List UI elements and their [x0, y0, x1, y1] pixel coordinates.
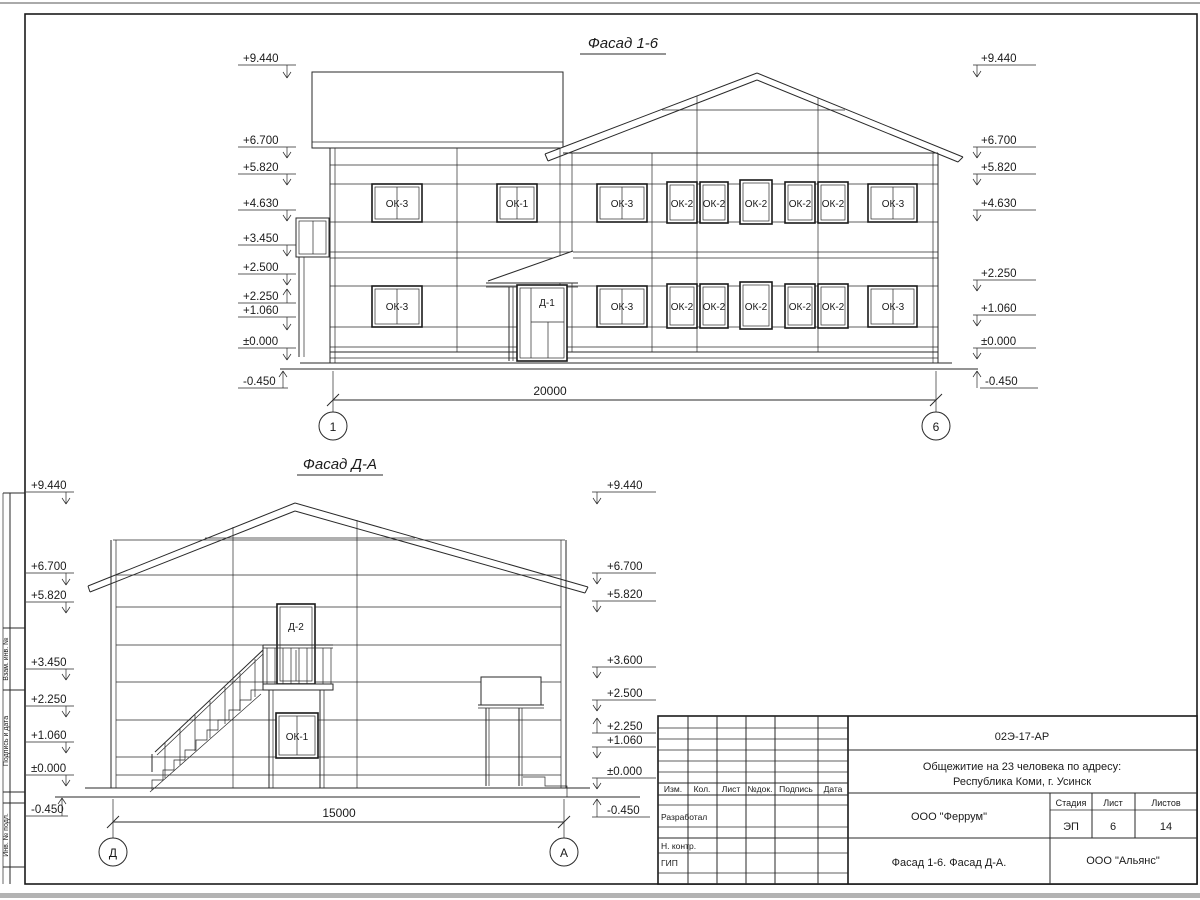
title-block: Изм. Кол. Лист №док. Подпись Дата Разраб… [658, 716, 1197, 884]
facade-1-6-ground [280, 363, 978, 369]
window-tag: ОК-1 [506, 199, 529, 210]
elevation-value: +5.820 [243, 162, 279, 174]
side-steps [523, 777, 567, 797]
elevation-value: +1.060 [31, 730, 67, 742]
side-stamp-label-3: Инв. № подл. [3, 813, 10, 857]
elevation-mark: ±0.000 [592, 766, 656, 789]
facade-1-6-roof-left [312, 72, 563, 148]
project-name-line2: Республика Коми, г. Усинск [953, 776, 1091, 788]
elevation-mark: +5.820 [973, 162, 1036, 185]
elevation-value: -0.450 [31, 804, 64, 816]
elevation-value: +6.700 [981, 135, 1017, 147]
drawing-canvas: Взам. инв. № Подпись и дата Инв. № подл.… [0, 0, 1200, 900]
elevation-value: +9.440 [31, 480, 67, 492]
window-tag: ОК-3 [386, 199, 409, 210]
row-nkontr: Н. контр. [661, 841, 696, 851]
elevation-mark: +3.600 [592, 655, 656, 678]
elevation-mark: +1.060 [973, 303, 1036, 326]
window: ОК-2 [667, 284, 697, 328]
elevation-value: +6.700 [243, 135, 279, 147]
facade-1-6-dimension: 20000 1 6 [319, 371, 950, 440]
elevation-mark: ±0.000 [26, 763, 74, 786]
facade-d-a-wall [111, 520, 566, 788]
elevation-value: +3.600 [607, 655, 643, 667]
landing [263, 684, 333, 690]
window: ОК-3 [372, 286, 422, 327]
facade-d-a-stair-entrance: Д-2 [150, 604, 333, 792]
dimension-value: 20000 [533, 384, 567, 398]
elevation-mark: +5.820 [26, 590, 74, 613]
window-tag: ОК-3 [611, 302, 634, 313]
col-podpis: Подпись [779, 784, 813, 794]
elevation-mark: -0.450 [26, 798, 68, 816]
sheets-header: Листов [1151, 798, 1180, 808]
org2-name: ООО "Альянс" [1086, 855, 1160, 867]
row-razrabotal: Разработал [661, 812, 707, 822]
elevation-mark: +9.440 [238, 53, 296, 78]
elevation-mark: +4.630 [973, 198, 1036, 221]
window-tag: ОК-3 [882, 302, 905, 313]
elevation-value: +4.630 [243, 198, 279, 210]
facade-1-6-windows-top: ОК-3 ОК-1 ОК-3 ОК-2 ОК-2 ОК-2 ОК-2 ОК-2 … [372, 180, 917, 224]
elevation-mark: -0.450 [973, 371, 1038, 388]
dimension-value: 15000 [322, 806, 356, 820]
elevation-mark: +9.440 [592, 480, 656, 504]
axis-label: Д [109, 846, 117, 860]
facade-d-a-window: ОК-1 [276, 713, 318, 758]
elevation-value: +5.820 [31, 590, 67, 602]
elevation-mark: -0.450 [592, 799, 650, 817]
window: ОК-2 [667, 182, 697, 223]
elevation-mark: +1.060 [592, 735, 656, 758]
window-tag: ОК-2 [789, 199, 812, 210]
elevation-mark: +6.700 [592, 561, 656, 584]
col-ndok: №док. [748, 784, 773, 794]
facade-1-6-wall [330, 148, 938, 363]
window: ОК-2 [740, 180, 772, 224]
elevation-mark: +2.250 [26, 694, 74, 717]
facade-d-a-title: Фасад Д-А [303, 456, 377, 473]
elevation-value: -0.450 [607, 805, 640, 817]
col-data: Дата [824, 784, 843, 794]
elevation-value: -0.450 [243, 376, 276, 388]
window: ОК-1 [497, 184, 537, 222]
window: ОК-2 [818, 284, 848, 328]
window-tag: ОК-3 [611, 199, 634, 210]
facade-1-6-side-porch [296, 218, 329, 357]
elevation-value: +3.450 [31, 657, 67, 669]
elevation-value: +4.630 [981, 198, 1017, 210]
elevation-mark: +6.700 [238, 135, 296, 158]
facade-1-6-entrance: Д-1 [486, 251, 578, 361]
window: ОК-2 [700, 182, 728, 223]
elevation-value: ±0.000 [981, 336, 1016, 348]
axis-label: А [560, 846, 568, 860]
paper-bottom-edge [0, 893, 1200, 898]
elevation-value: +9.440 [243, 53, 279, 65]
facade-1-6-marks-right: +9.440 +6.700 +5.820 +4.630 +2.250 +1.06… [973, 53, 1038, 388]
elevation-value: +6.700 [31, 561, 67, 573]
window: ОК-3 [868, 184, 917, 222]
org-name: ООО "Феррум" [911, 811, 987, 823]
elevation-mark: ±0.000 [238, 336, 296, 360]
elevation-mark: +6.700 [26, 561, 74, 585]
facade-d-a-dimension: 15000 Д А [99, 799, 578, 866]
window: ОК-2 [740, 282, 772, 329]
window-tag: ОК-2 [822, 199, 845, 210]
elevation-mark: +2.250 [973, 268, 1036, 291]
window-tag: ОК-2 [745, 302, 768, 313]
elevation-value: +6.700 [607, 561, 643, 573]
window-tag: ОК-3 [386, 302, 409, 313]
window-tag: ОК-2 [671, 302, 694, 313]
facade-1-6-title: Фасад 1-6 [588, 35, 659, 52]
elevation-value: +1.060 [243, 305, 279, 317]
window: ОК-2 [785, 284, 815, 328]
axis-label: 1 [330, 420, 337, 434]
window: ОК-3 [868, 286, 917, 327]
window: ОК-3 [597, 286, 647, 327]
elevation-value: ±0.000 [31, 763, 66, 775]
facade-d-a-roof [88, 503, 588, 593]
elevation-mark: -0.450 [238, 371, 288, 388]
elevation-mark: +4.630 [238, 198, 296, 221]
door-d1 [517, 285, 567, 361]
window-tag: ОК-2 [671, 199, 694, 210]
elevation-value: +5.820 [607, 589, 643, 601]
window: ОК-2 [785, 182, 815, 223]
elevation-mark: +2.500 [592, 688, 656, 711]
elevation-mark: +9.440 [26, 480, 74, 504]
facade-d-a-marks-left: +9.440 +6.700 +5.820 +3.450 +2.250 +1.06… [26, 480, 74, 816]
facade-1-6: Фасад 1-6 [238, 35, 1038, 440]
window-tag: ОК-2 [745, 199, 768, 210]
elevation-value: +2.250 [243, 291, 279, 303]
facade-d-a-side-canopy [478, 677, 567, 797]
elevation-mark: +2.500 [238, 262, 296, 285]
side-stamp-label-2: Подпись и дата [3, 716, 10, 766]
window: ОК-3 [597, 184, 647, 222]
elevation-value: +1.060 [981, 303, 1017, 315]
sheet-content: Фасад 1-6. Фасад Д-А. [892, 857, 1007, 869]
doc-code: 02Э-17-АР [995, 731, 1049, 743]
elevation-mark: +1.060 [238, 305, 296, 330]
sheet-value: 6 [1110, 821, 1116, 833]
elevation-value: +2.250 [31, 694, 67, 706]
door-tag: Д-1 [539, 298, 555, 309]
facade-1-6-roof-gable [545, 73, 963, 162]
elevation-mark: +3.450 [238, 233, 296, 256]
door-tag: Д-2 [288, 622, 304, 633]
row-gip: ГИП [661, 858, 678, 868]
elevation-value: ±0.000 [243, 336, 278, 348]
elevation-mark: +3.450 [26, 657, 74, 680]
window-tag: ОК-2 [703, 199, 726, 210]
window: ОК-2 [700, 284, 728, 328]
elevation-value: +2.500 [607, 688, 643, 700]
window: ОК-2 [818, 182, 848, 223]
window-tag: ОК-2 [822, 302, 845, 313]
elevation-mark: +9.440 [973, 53, 1036, 77]
facade-d-a: Фасад Д-А [26, 456, 656, 866]
elevation-value: +9.440 [981, 53, 1017, 65]
window-tag: ОК-3 [882, 199, 905, 210]
elevation-mark: +5.820 [592, 589, 656, 612]
stage-header: Стадия [1056, 798, 1087, 808]
side-stamp-column: Взам. инв. № Подпись и дата Инв. № подл. [3, 493, 25, 884]
elevation-mark: +1.060 [26, 730, 74, 753]
facade-1-6-marks-left: +9.440 +6.700 +5.820 +4.630 +3.450 +2.50… [238, 53, 296, 388]
window: ОК-3 [372, 184, 422, 222]
window-tag: ОК-2 [703, 302, 726, 313]
elevation-value: ±0.000 [607, 766, 642, 778]
facade-d-a-marks-right: +9.440 +6.700 +5.820 +3.600 +2.500 +2.25… [592, 480, 656, 817]
sheets-value: 14 [1160, 821, 1172, 833]
elevation-value: -0.450 [985, 376, 1018, 388]
elevation-mark: +6.700 [973, 135, 1036, 158]
window-tag: ОК-2 [789, 302, 812, 313]
drawing-sheet: Взам. инв. № Подпись и дата Инв. № подл.… [0, 0, 1200, 900]
elevation-mark: +2.250 [238, 289, 296, 303]
facade-d-a-ground [55, 788, 640, 797]
axis-label: 6 [933, 420, 940, 434]
elevation-value: +3.450 [243, 233, 279, 245]
col-izm: Изм. [664, 784, 682, 794]
col-list: Лист [722, 784, 741, 794]
elevation-value: +1.060 [607, 735, 643, 747]
elevation-value: +2.500 [243, 262, 279, 274]
elevation-value: +2.250 [981, 268, 1017, 280]
facade-1-6-windows-bottom: ОК-3 ОК-3 ОК-2 ОК-2 ОК-2 ОК-2 ОК-2 ОК-3 [372, 282, 917, 329]
stage-value: ЭП [1063, 821, 1079, 833]
elevation-value: +9.440 [607, 480, 643, 492]
elevation-mark: +5.820 [238, 162, 296, 185]
elevation-mark: +2.250 [592, 718, 656, 733]
sheet-header: Лист [1103, 798, 1123, 808]
elevation-mark: ±0.000 [973, 336, 1036, 359]
stair-handrail [155, 650, 263, 752]
col-kol: Кол. [694, 784, 711, 794]
elevation-value: +5.820 [981, 162, 1017, 174]
window-tag: ОК-1 [286, 732, 309, 743]
project-name-line1: Общежитие на 23 человека по адресу: [923, 761, 1121, 773]
side-stamp-label-1: Взам. инв. № [3, 637, 10, 680]
elevation-value: +2.250 [607, 721, 643, 733]
